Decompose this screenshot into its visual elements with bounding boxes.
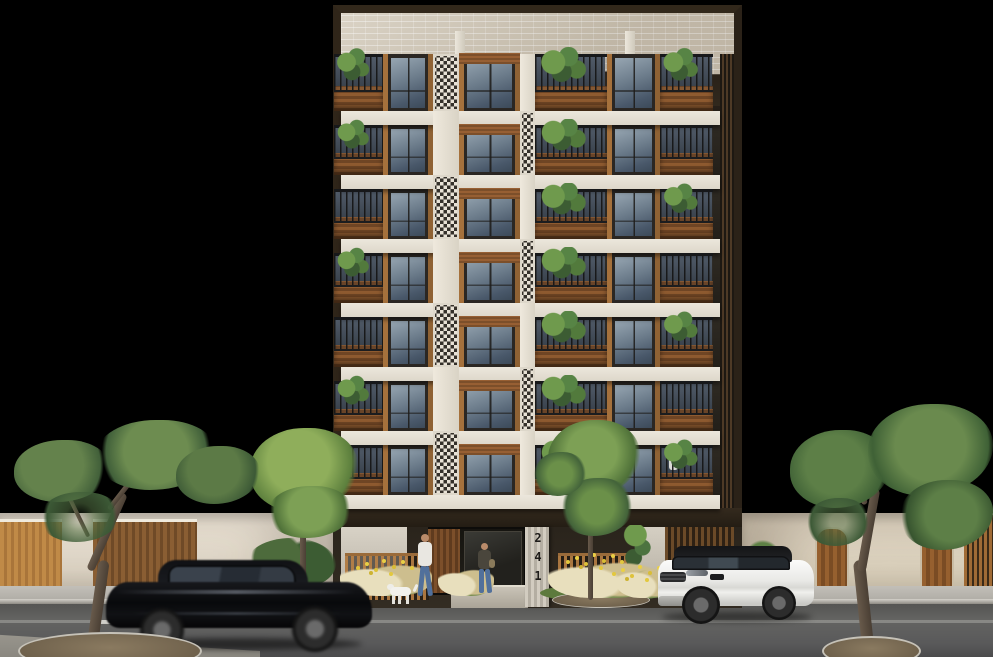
lattice-column <box>520 239 535 303</box>
window-glass <box>391 449 424 492</box>
balcony-railing <box>535 54 607 92</box>
balcony-railing <box>660 54 713 92</box>
dog-leg <box>392 595 395 604</box>
balcony-railing <box>660 253 713 287</box>
facade-floors <box>341 54 720 509</box>
wood-header <box>459 444 520 455</box>
person-leg <box>424 566 433 596</box>
window-glass <box>615 193 652 236</box>
balcony-unit <box>535 317 607 367</box>
balcony-railing <box>334 125 383 159</box>
balcony-unit <box>535 54 607 111</box>
lattice-column <box>433 111 460 175</box>
floor-row <box>341 445 720 495</box>
suv-windows <box>672 556 790 570</box>
window-glass <box>467 385 512 428</box>
window-glass <box>467 129 512 172</box>
dog-leg <box>406 595 409 604</box>
balcony-railing <box>334 381 383 415</box>
balcony-unit <box>334 189 383 239</box>
balcony-unit <box>334 125 383 175</box>
window-unit <box>459 54 520 111</box>
balcony-railing <box>535 381 607 415</box>
address-number: 241 <box>531 531 545 588</box>
window-glass <box>615 129 652 172</box>
balcony-unit <box>660 54 713 111</box>
window-unit <box>383 445 432 495</box>
window-unit <box>383 125 432 175</box>
window-unit <box>459 189 520 239</box>
yellow-flowers <box>612 572 616 576</box>
window-unit <box>607 317 660 367</box>
balcony-unit <box>660 253 713 303</box>
person-torso <box>418 542 432 566</box>
white-dog <box>387 584 417 606</box>
white-suv <box>658 544 816 624</box>
dog-leg <box>398 595 401 604</box>
window-glass <box>615 321 652 364</box>
handbag <box>489 559 495 568</box>
lattice-column <box>433 431 460 495</box>
entrance-canopy-soffit <box>333 508 742 527</box>
window-unit <box>607 125 660 175</box>
balcony-railing <box>535 125 607 159</box>
lattice-column <box>433 54 460 111</box>
sedan-wheel-rear <box>292 606 338 652</box>
suv-headlight <box>686 570 708 576</box>
balcony-unit <box>535 125 607 175</box>
floor-row <box>341 54 720 111</box>
wood-header <box>459 124 520 135</box>
person-leg <box>479 569 484 593</box>
balcony-railing <box>535 317 607 351</box>
window-unit <box>383 189 432 239</box>
window-glass <box>615 385 652 428</box>
street-scene: 241 <box>0 0 993 657</box>
window-unit <box>383 54 432 111</box>
lattice-column <box>433 367 460 431</box>
wood-header <box>459 380 520 391</box>
balcony-railing <box>334 253 383 287</box>
window-glass <box>391 129 424 172</box>
balcony-unit <box>334 381 383 431</box>
balcony-railing <box>660 125 713 159</box>
wood-header <box>459 252 520 263</box>
lattice-column <box>433 175 460 239</box>
balcony-railing <box>535 189 607 223</box>
balcony-unit <box>535 253 607 303</box>
window-glass <box>391 321 424 364</box>
floor-slab <box>341 495 720 509</box>
balcony-unit <box>334 317 383 367</box>
suv-side-vent <box>710 574 724 580</box>
wood-header <box>459 316 520 327</box>
suv-wheel-front <box>682 586 720 624</box>
pedestrian-with-dog <box>414 534 436 600</box>
lattice-column <box>520 175 535 239</box>
yellow-flowers <box>566 560 570 564</box>
window-glass <box>467 257 512 300</box>
balcony-unit <box>660 317 713 367</box>
balcony-railing <box>660 445 713 479</box>
balcony-unit <box>660 381 713 431</box>
balcony-unit <box>660 445 713 495</box>
window-unit <box>607 253 660 303</box>
floor-row <box>341 253 720 303</box>
balcony-railing <box>660 189 713 223</box>
window-glass <box>467 193 512 236</box>
window-unit <box>459 381 520 431</box>
floor-row <box>341 189 720 239</box>
balcony-unit <box>334 54 383 111</box>
person-head <box>421 534 429 542</box>
window-unit <box>383 253 432 303</box>
lattice-column <box>433 303 460 367</box>
window-unit <box>459 253 520 303</box>
person-leg <box>485 569 492 593</box>
wood-header <box>459 188 520 199</box>
lattice-column <box>520 54 535 111</box>
window-glass <box>391 257 424 300</box>
lattice-column <box>520 111 535 175</box>
window-unit <box>383 381 432 431</box>
window-unit <box>607 54 660 111</box>
wood-louver-strip <box>720 54 734 508</box>
window-glass <box>391 193 424 236</box>
window-unit <box>459 445 520 495</box>
window-glass <box>615 257 652 300</box>
window-unit <box>459 125 520 175</box>
balcony-railing <box>334 189 383 223</box>
balcony-railing <box>334 317 383 351</box>
window-glass <box>467 58 512 108</box>
balcony-railing <box>660 317 713 351</box>
lattice-column <box>520 431 535 495</box>
window-unit <box>607 189 660 239</box>
balcony-railing <box>334 54 383 92</box>
wood-header <box>459 53 520 64</box>
lattice-column <box>520 303 535 367</box>
suv-wheel-rear <box>762 586 796 620</box>
balcony-unit <box>334 253 383 303</box>
window-unit <box>459 317 520 367</box>
balcony-unit <box>660 189 713 239</box>
lattice-column <box>520 367 535 431</box>
window-unit <box>383 317 432 367</box>
balcony-railing <box>660 381 713 415</box>
balcony-railing <box>535 253 607 287</box>
window-glass <box>391 385 424 428</box>
floor-row <box>341 317 720 367</box>
window-glass <box>467 321 512 364</box>
balcony-unit <box>660 125 713 175</box>
floor-row <box>341 125 720 175</box>
window-glass <box>391 58 424 108</box>
floor-row <box>341 381 720 431</box>
lattice-column <box>433 239 460 303</box>
window-glass <box>467 449 512 492</box>
tree-canopy <box>176 446 260 504</box>
sedan-highlight <box>116 590 356 594</box>
person-at-entrance <box>475 543 495 595</box>
apartment-building: 241 <box>333 5 742 600</box>
person-head <box>481 543 488 550</box>
window-glass <box>615 58 652 108</box>
suv-grille <box>660 572 686 582</box>
balcony-unit <box>535 189 607 239</box>
